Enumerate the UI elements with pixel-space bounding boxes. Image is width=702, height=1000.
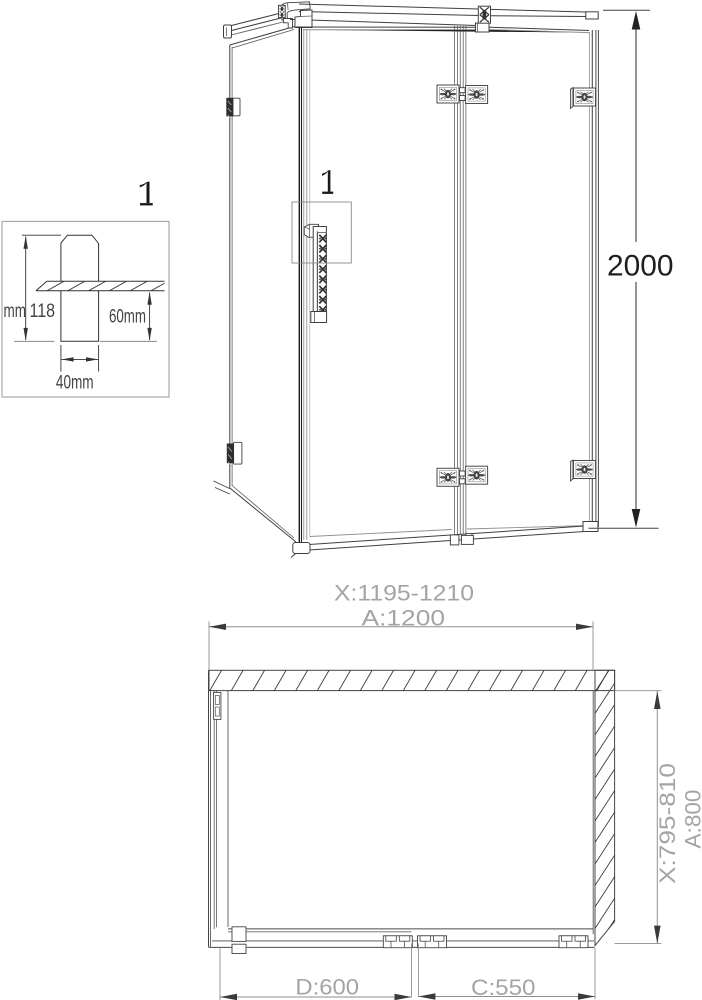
- svg-text:X:1195-1210: X:1195-1210: [334, 581, 474, 606]
- svg-text:X:795-810: X:795-810: [655, 763, 680, 884]
- svg-text:mm: mm: [4, 300, 27, 322]
- svg-text:2000: 2000: [607, 250, 674, 283]
- svg-text:C:550: C:550: [471, 975, 536, 1000]
- svg-text:118: 118: [30, 300, 56, 322]
- svg-text:40mm: 40mm: [56, 372, 94, 394]
- svg-text:D:600: D:600: [295, 975, 359, 1000]
- svg-text:A:800: A:800: [681, 790, 702, 849]
- svg-text:60mm: 60mm: [109, 306, 146, 328]
